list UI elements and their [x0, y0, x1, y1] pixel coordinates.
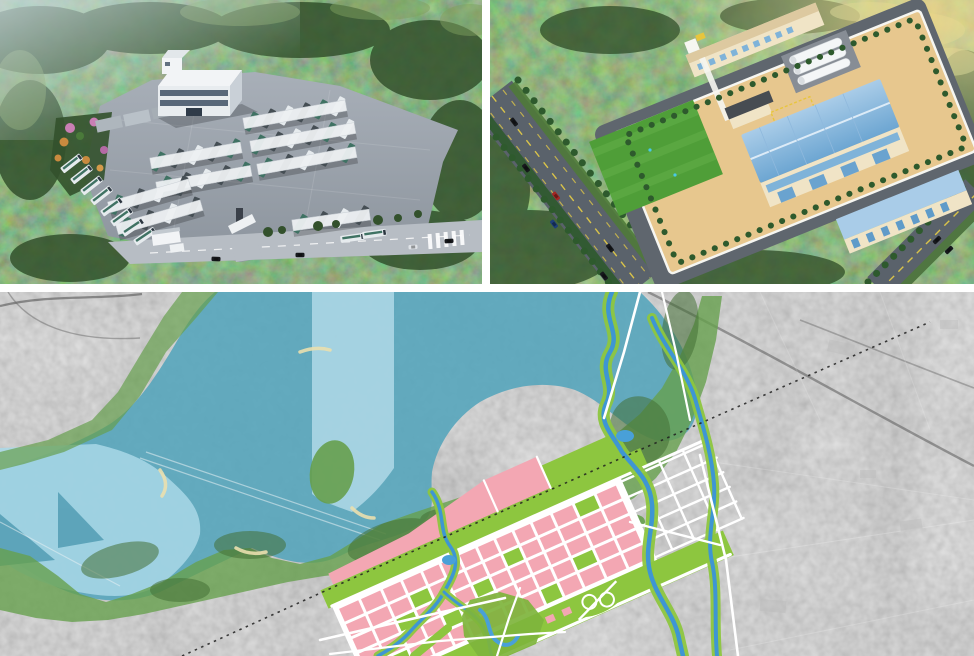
collage-root — [0, 0, 974, 656]
car-windows — [214, 257, 218, 260]
car — [444, 238, 453, 243]
car-windows — [298, 254, 302, 257]
pond — [616, 430, 634, 442]
industrial-plant-scene — [490, 0, 974, 284]
car-windows — [411, 245, 415, 248]
car — [408, 244, 417, 249]
planning-map-scene — [0, 292, 974, 656]
lawn-dot — [648, 148, 651, 151]
car — [211, 257, 220, 262]
panel-satellite-planning-map — [0, 292, 974, 656]
pond — [442, 555, 456, 565]
panel-bus-depot-render — [0, 0, 482, 284]
car-windows — [447, 239, 451, 242]
panel-industrial-plant-render — [490, 0, 974, 284]
bus-depot-scene — [0, 0, 482, 284]
car — [296, 253, 305, 257]
lawn-dot — [673, 173, 676, 176]
